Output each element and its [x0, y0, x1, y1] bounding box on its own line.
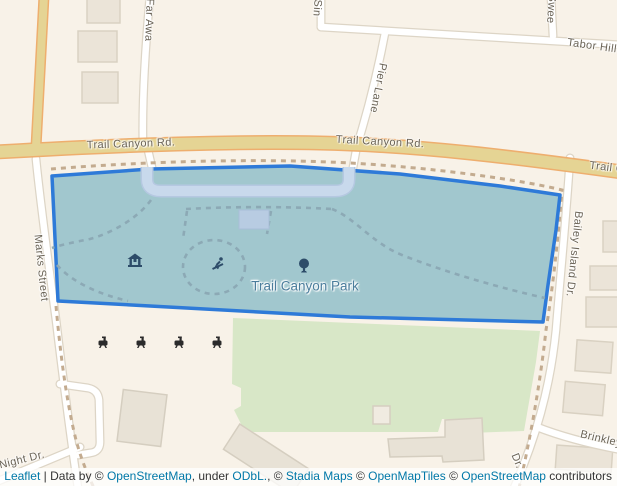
attribution-text: ©: [353, 469, 369, 483]
park-building: [239, 210, 269, 229]
openstreetmap-link[interactable]: OpenStreetMap: [107, 469, 192, 483]
attribution-text: , under: [192, 469, 233, 483]
map-canvas[interactable]: Trail Canyon Rd. Trail Canyon Rd. Trail …: [0, 0, 617, 486]
leaflet-link[interactable]: Leaflet: [4, 469, 40, 483]
openstreetmap-contributors-link[interactable]: OpenStreetMap: [461, 469, 546, 483]
attribution-text: , ©: [267, 469, 286, 483]
map-tiles: [0, 0, 617, 486]
stadia-maps-link[interactable]: Stadia Maps: [286, 469, 353, 483]
attribution-text: ©: [446, 469, 462, 483]
road-sweet: [551, 0, 553, 36]
openmaptiles-link[interactable]: OpenMapTiles: [368, 469, 446, 483]
attribution-text: | Data by ©: [40, 469, 107, 483]
attribution-text: contributors: [546, 469, 612, 483]
odbl-link[interactable]: ODbL.: [232, 469, 267, 483]
attribution-bar: Leaflet | Data by © OpenStreetMap, under…: [0, 468, 617, 486]
